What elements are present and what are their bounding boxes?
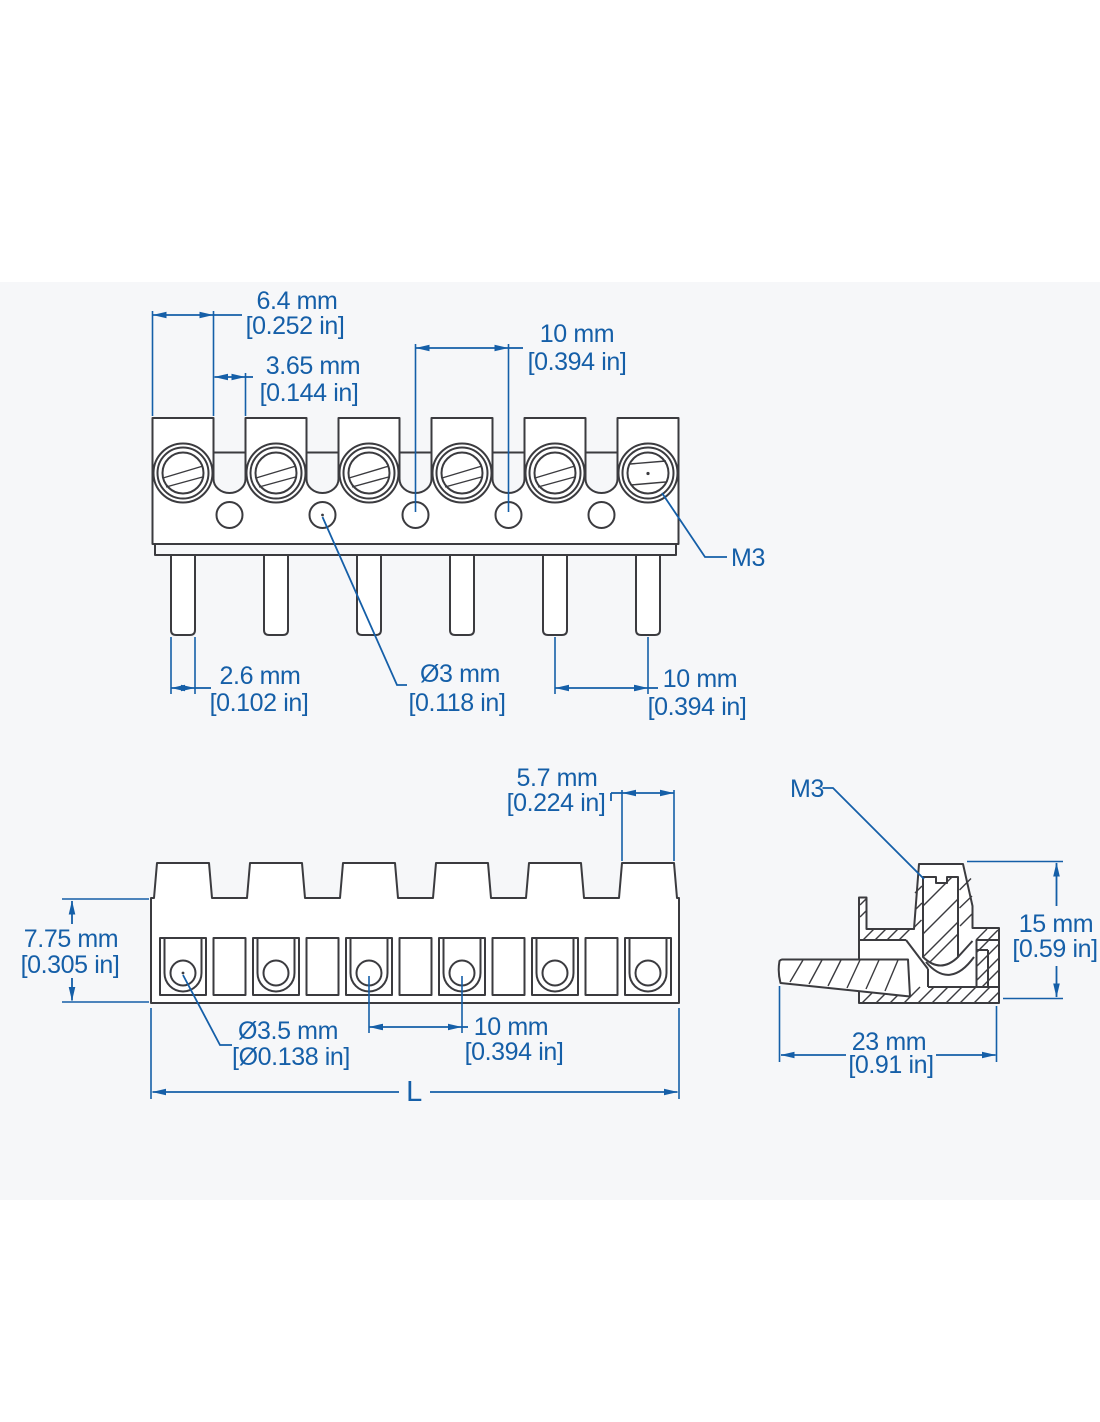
dim-tower-gap-in: [0.144 in] bbox=[260, 379, 359, 407]
dim-overall-length: L bbox=[406, 1076, 422, 1108]
drawing-page: 6.4 mm [0.252 in] 3.65 mm [0.144 in] 10 … bbox=[0, 0, 1100, 1422]
screw bbox=[433, 444, 492, 503]
dim-tower-gap-mm: 3.65 mm bbox=[266, 352, 360, 380]
dim-body-height-mm: 7.75 mm bbox=[24, 925, 118, 953]
dim-thread-top: M3 bbox=[731, 544, 765, 572]
dim-hole-pitch-mm: 10 mm bbox=[540, 320, 614, 348]
screw-m3-referenced bbox=[619, 444, 678, 503]
dim-pin-pitch-in: [0.394 in] bbox=[648, 693, 747, 721]
screw bbox=[154, 444, 213, 503]
dim-wire-hole-in: [Ø0.138 in] bbox=[232, 1043, 350, 1071]
dim-hole-pitch-in: [0.394 in] bbox=[528, 348, 627, 376]
dim-height-in: [0.59 in] bbox=[1012, 935, 1097, 963]
dim-pin-dia-mm: Ø3 mm bbox=[420, 660, 500, 688]
dim-front-pitch-mm: 10 mm bbox=[474, 1013, 548, 1041]
dim-depth-in: [0.91 in] bbox=[848, 1051, 933, 1079]
dim-top-width-in: [0.224 in] bbox=[507, 789, 606, 817]
dim-tower-width-in: [0.252 in] bbox=[246, 312, 345, 340]
dim-pin-dia-in: [0.118 in] bbox=[408, 689, 505, 717]
dim-front-pitch-in: [0.394 in] bbox=[465, 1038, 564, 1066]
dim-pin-pitch-mm: 10 mm bbox=[663, 665, 737, 693]
screw bbox=[340, 444, 399, 503]
dim-pin-width-in: [0.102 in] bbox=[210, 689, 309, 717]
dim-top-width-mm: 5.7 mm bbox=[517, 764, 598, 792]
dim-height-mm: 15 mm bbox=[1019, 910, 1093, 938]
dim-wire-hole-mm: Ø3.5 mm bbox=[238, 1017, 338, 1045]
screw bbox=[247, 444, 306, 503]
dim-pin-width-mm: 2.6 mm bbox=[220, 662, 301, 690]
technical-drawing: 6.4 mm [0.252 in] 3.65 mm [0.144 in] 10 … bbox=[0, 0, 1100, 1422]
dim-body-height-in: [0.305 in] bbox=[21, 951, 120, 979]
screw bbox=[526, 444, 585, 503]
dim-tower-width-mm: 6.4 mm bbox=[257, 287, 338, 315]
dim-thread-section: M3 bbox=[790, 775, 824, 803]
